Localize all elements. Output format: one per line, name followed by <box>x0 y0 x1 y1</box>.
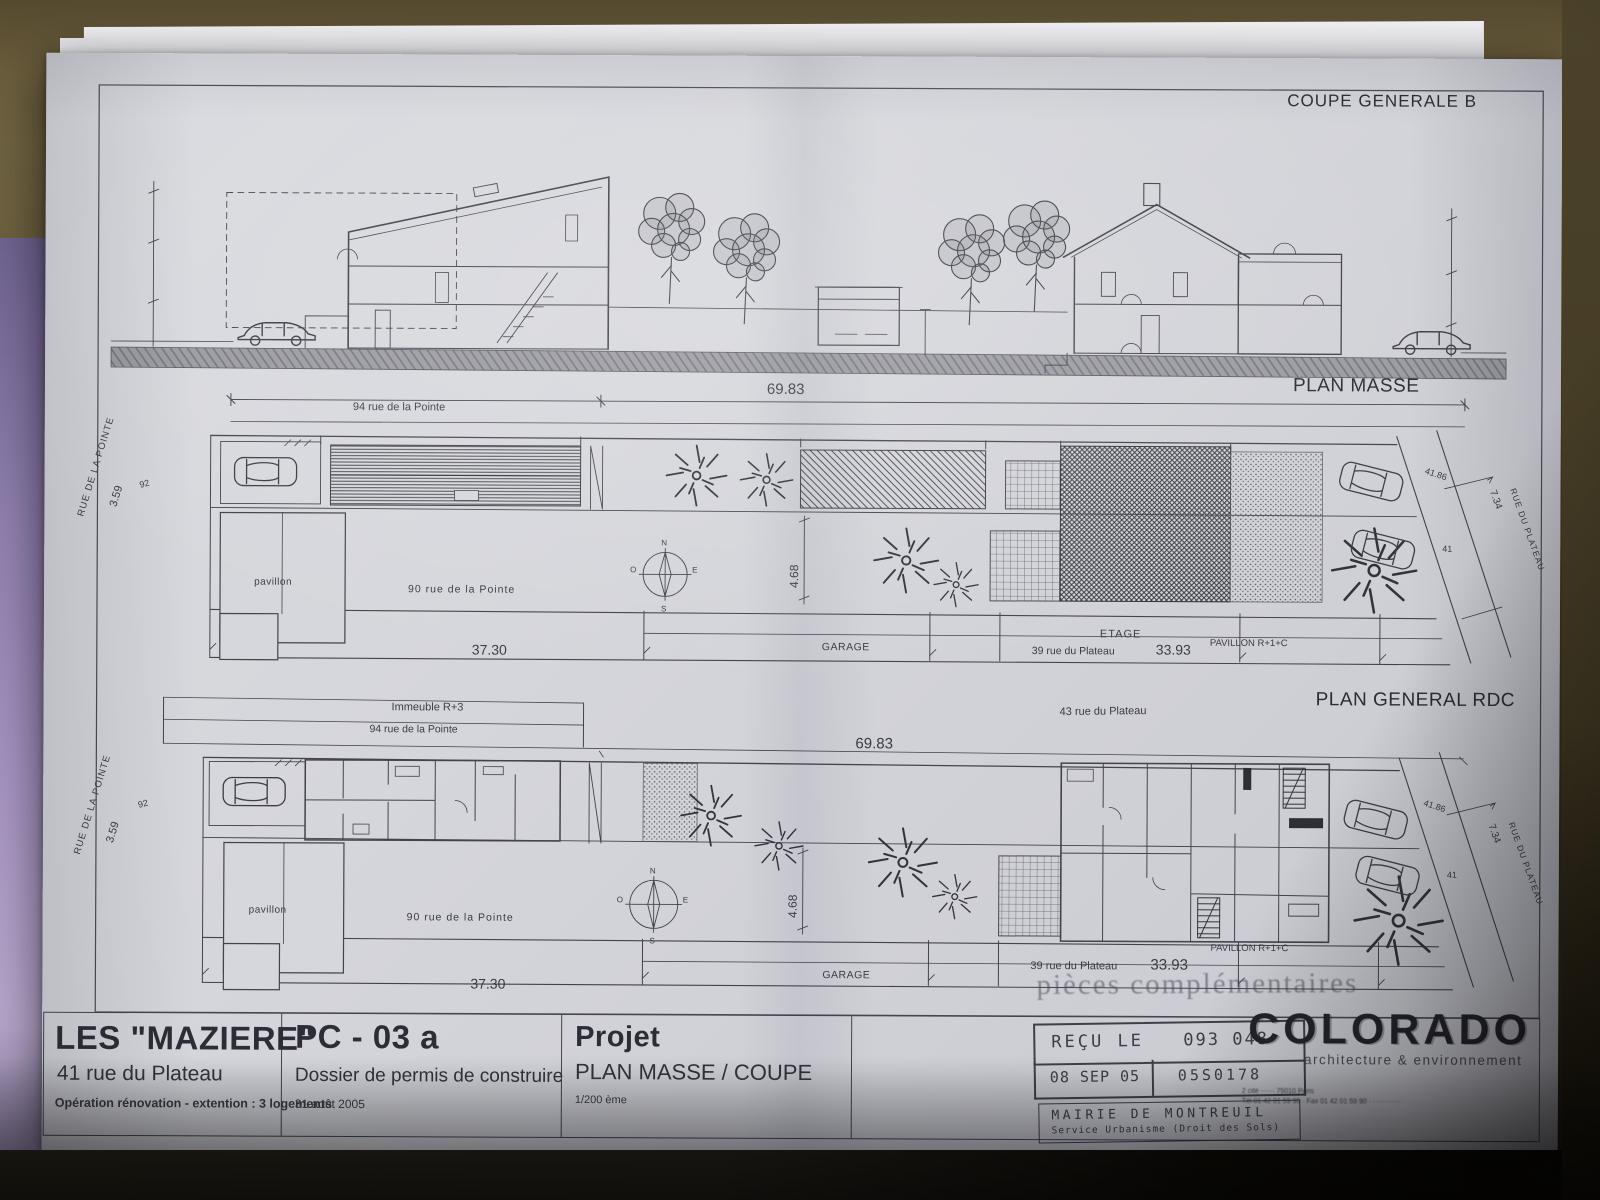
logo-name: COLORADO <box>1248 1008 1531 1052</box>
coupe-title: COUPE GENERALE B <box>1287 92 1477 110</box>
car-plan-masse-right-1 <box>1338 460 1405 502</box>
table-shadow-bottom <box>0 1150 1600 1200</box>
masse-etage: ETAGE <box>1100 629 1142 640</box>
compass-o: O <box>630 565 636 574</box>
tree-plan-masse-4 <box>934 563 978 607</box>
compass-e: E <box>692 566 697 575</box>
tree-plan-rdc-2 <box>755 822 803 870</box>
tree-section-4 <box>1003 201 1069 311</box>
pavillon-footprint-rdc <box>223 842 344 990</box>
stamp-date: 08 SEP 05 <box>1050 1069 1140 1085</box>
photo-of-architectural-drawing: { "coupe": { "title": "COUPE GENERALE B"… <box>0 0 1600 1200</box>
rdc-rooms-left <box>305 760 560 841</box>
rdc-rue-pointe-94: 94 rue de la Pointe <box>369 724 457 735</box>
masse-dim-468: 4.68 <box>788 565 800 588</box>
dashed-neighbour-outline <box>226 192 457 328</box>
compass-rdc-n: N <box>650 866 656 875</box>
gravel-stipple-right <box>1230 452 1323 602</box>
doc-reference: PC - 03 a <box>295 1020 439 1054</box>
masse-rue-pointe-90: 90 rue de la Pointe <box>408 584 515 595</box>
compass-masse <box>639 548 691 600</box>
stamp-mairie: MAIRIE DE MONTREUIL <box>1051 1106 1266 1122</box>
masse-rue-plateau-39: 39 rue du Plateau <box>1032 646 1115 657</box>
tree-section-3 <box>938 215 1004 325</box>
roof-crosshatch-right <box>1060 446 1231 602</box>
stamp-recu-label: REÇU LE <box>1051 1033 1144 1051</box>
tree-plan-masse-3 <box>874 528 938 592</box>
rdc-garage: GARAGE <box>822 970 870 981</box>
plan-rdc-drawing <box>162 697 1514 995</box>
masse-rue-pointe-94: 94 rue de la Pointe <box>353 402 445 413</box>
coupe-section-drawing <box>111 175 1507 379</box>
logo-tagline: architecture & environnement <box>1304 1053 1522 1067</box>
rdc-immeuble: Immeuble R+3 <box>392 702 464 713</box>
car-plan-rdc-right-1 <box>1342 798 1409 840</box>
plan-masse-title: PLAN MASSE <box>1293 376 1420 396</box>
plan-masse-drawing <box>210 393 1512 665</box>
rdc-dim-total: 69.83 <box>855 736 893 751</box>
masse-garage: GARAGE <box>822 642 870 653</box>
sheet-scale: 1/200 ème <box>575 1095 627 1106</box>
doc-date: 31 août 2005 <box>295 1098 365 1110</box>
stamp-service: Service Urbanisme (Droit des Sols) <box>1052 1123 1281 1136</box>
compass-rdc-e: E <box>683 895 688 904</box>
project-address: 41 rue du Plateau <box>57 1063 223 1085</box>
tree-plan-rdc-4 <box>933 875 977 919</box>
rdc-pavillon: pavillon <box>249 906 287 916</box>
rdc-pavillon-r1c: PAVILLON R+1+C <box>1210 944 1288 954</box>
compass-rdc-o: O <box>617 895 623 904</box>
house-section-right <box>1045 183 1342 374</box>
tree-section-1 <box>638 193 704 303</box>
masse-dim-3393: 33.93 <box>1156 643 1191 657</box>
rdc-dim-41: 41 <box>1447 871 1457 880</box>
masse-dim-3730: 37.30 <box>472 643 507 657</box>
plan-rdc-title: PLAN GENERAL RDC <box>1316 690 1516 710</box>
tree-plan-masse-1 <box>666 445 726 505</box>
courtyard-grid-mid <box>990 531 1060 601</box>
car-plan-rdc-right-2 <box>1354 854 1421 896</box>
car-left-section <box>238 323 315 346</box>
compass-n: N <box>661 538 667 547</box>
pieces-complementaires-stamp: pièces complémentaires <box>1036 969 1358 1000</box>
courtyard-grid-rdc <box>999 856 1061 936</box>
masse-pavillon: pavillon <box>254 578 292 588</box>
stair-symbol-2 <box>1283 768 1305 808</box>
rdc-dim-3730: 37.30 <box>470 977 505 991</box>
title-block-cell-sheet: Projet PLAN MASSE / COUPE 1/200 ème <box>561 1015 853 1138</box>
architect-logo: COLORADO architecture & environnement 2 … <box>1238 1006 1538 1117</box>
compass-s: S <box>661 604 666 613</box>
building-section-left <box>305 176 609 349</box>
title-block-cell-reference: PC - 03 a Dossier de permis de construir… <box>281 1014 563 1137</box>
project-name: LES "MAZIERE" <box>55 1021 315 1055</box>
tree-section-2 <box>713 214 779 324</box>
masse-dim-41: 41 <box>1442 545 1452 554</box>
stair-symbol-1 <box>1198 898 1220 938</box>
shed-section <box>815 287 902 345</box>
car-plan-masse-left <box>235 458 297 486</box>
title-block-cell-project: LES "MAZIERE" 41 rue du Plateau Opératio… <box>44 1013 283 1136</box>
doc-type: Dossier de permis de construire <box>295 1066 563 1086</box>
tree-plan-rdc-3 <box>869 828 937 896</box>
roof-hatch-mid <box>800 450 985 509</box>
masse-pavillon-r1c: PAVILLON R+1+C <box>1210 639 1288 649</box>
sheet-kind: Projet <box>575 1023 660 1052</box>
rdc-rooms-right <box>1061 763 1330 942</box>
compass-rdc <box>626 876 682 932</box>
table-shadow-right <box>1562 0 1600 1200</box>
rdc-rue-plateau-43: 43 rue du Plateau <box>1060 706 1147 718</box>
rdc-rue-pointe-90: 90 rue de la Pointe <box>407 912 514 923</box>
drawing-sheet: N S E O N S E O COUPE GENERALE B PLAN MA… <box>42 53 1563 1162</box>
logo-address: 2 cité ······ 75010 Paris <box>1242 1088 1314 1095</box>
car-right-section <box>1393 332 1470 355</box>
rdc-dim-468: 4.68 <box>787 895 799 918</box>
car-plan-rdc-left <box>223 777 285 805</box>
compass-rdc-s: S <box>650 936 655 945</box>
logo-contact: Tél 01 42 01 59 90 · Fax 01 42 01 59 90 … <box>1242 1098 1401 1106</box>
courtyard-grid-top <box>1005 461 1060 509</box>
sheet-title-text: PLAN MASSE / COUPE <box>575 1061 812 1084</box>
masse-dim-total: 69.83 <box>767 382 805 397</box>
tree-plan-rdc-5 <box>1354 876 1442 964</box>
tree-plan-masse-2 <box>740 454 792 506</box>
